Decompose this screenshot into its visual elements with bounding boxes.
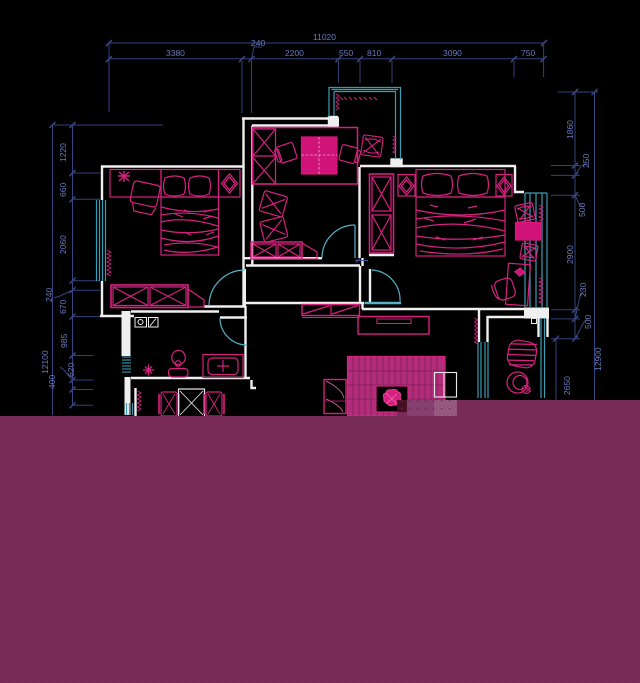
svg-text:3090: 3090 (443, 48, 462, 58)
svg-text:2900: 2900 (565, 245, 575, 264)
svg-text:670: 670 (58, 300, 68, 314)
svg-text:750: 750 (521, 48, 535, 58)
svg-text:3380: 3380 (166, 48, 185, 58)
svg-text:1220: 1220 (58, 143, 68, 162)
svg-text:500: 500 (577, 203, 587, 217)
svg-text:660: 660 (58, 183, 68, 197)
svg-text:2060: 2060 (58, 235, 68, 254)
svg-text:250: 250 (581, 154, 591, 168)
svg-text:230: 230 (578, 283, 588, 297)
svg-text:985: 985 (59, 334, 69, 348)
svg-text:240: 240 (251, 38, 265, 48)
svg-text:620: 620 (66, 363, 76, 377)
svg-text:12900: 12900 (593, 347, 603, 371)
svg-text:810: 810 (367, 48, 381, 58)
svg-text:12100: 12100 (40, 350, 50, 374)
svg-text:1860: 1860 (565, 120, 575, 139)
svg-text:400: 400 (47, 375, 57, 389)
svg-text:500: 500 (583, 315, 593, 329)
svg-text:11020: 11020 (313, 32, 336, 42)
svg-text:2650: 2650 (562, 376, 572, 395)
svg-text:550: 550 (339, 48, 353, 58)
svg-text:240: 240 (44, 288, 54, 302)
svg-text:2200: 2200 (285, 48, 304, 58)
